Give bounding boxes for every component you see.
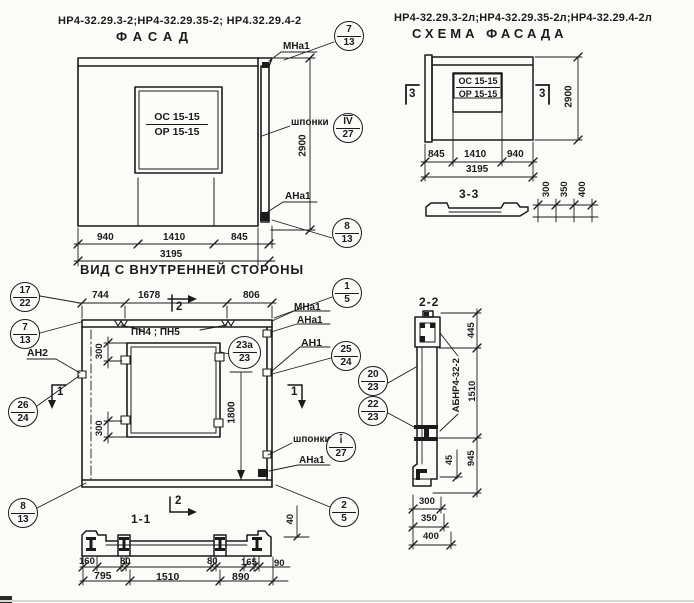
section-2-2-profile [413,311,440,486]
section-2-2-dim-445: 445 [467,317,477,343]
facade-dim-w2: 1410 [163,232,185,243]
plan-dim-300-top: 300 [95,338,105,364]
callout-numerator: 8 [20,502,26,512]
plan-dim-806: 806 [243,290,260,301]
scheme-dim-w2: 1410 [464,149,486,160]
section-1-1-dim-1510: 1510 [156,572,179,584]
section-1-1-dim-795: 795 [94,571,112,583]
callout-numerator: 23а [236,341,253,351]
callout-numerator: 17 [19,286,30,296]
callout-key-plan: i 27 [326,432,356,462]
scheme-dim-total: 3195 [466,164,488,175]
plan-section-mark-2-bottom: 2 [175,495,181,508]
section-2-2-dim-300: 300 [419,497,435,507]
callout-1-5: 1 5 [332,278,362,308]
scheme-title: НР4-32.29.3-2л;НР4-32.29.35-2л;НР4-32.29… [394,12,652,24]
callout-26-24: 26 24 [8,397,38,427]
plan-label-ana1-bottom: АНа1 [299,455,325,466]
callout-17-22: 17 22 [10,282,40,312]
section-3-3-title: 3-3 [459,188,479,201]
window-mark-bottom: ОР 15-15 [155,126,200,138]
section-2-2-beam-label: АБНР4-32-2 [452,348,462,422]
callout-key-facade: IV 27 [333,113,363,143]
section-2-2-dim-400: 400 [423,532,439,542]
section-1-1-dim-90: 90 [274,559,285,569]
callout-25-24: 25 24 [331,341,361,371]
callout-numerator: i [340,436,343,446]
callout-denominator: 23 [367,383,378,393]
callout-8-13-facade: 8 13 [332,218,362,248]
callout-denominator: 5 [344,295,350,305]
plan-section-mark-2-top: 2 [176,301,182,314]
callout-denominator: 13 [341,235,352,245]
callout-numerator: 1 [344,282,350,292]
callout-7-13-facade: 7 13 [334,21,364,51]
plan-label-ana1-top: АНа1 [297,315,323,326]
section-1-1-anchor-beams [86,537,262,551]
plan-dim-1800: 1800 [227,396,238,430]
plan-dim-300-bottom: 300 [95,415,105,441]
callout-numerator: 7 [346,25,352,35]
section-1-1-dim-80a: 80 [120,557,131,567]
plan-dim-1678: 1678 [138,290,160,301]
scheme-dim-w1: 845 [428,149,445,160]
callout-22-23: 22 23 [358,396,388,426]
callout-numerator: 7 [22,323,28,333]
plan-dim-40: 40 [286,506,296,532]
scheme-dim-w3: 940 [507,149,524,160]
section-2-2-dim-45: 45 [445,450,455,470]
callout-denominator: 13 [17,515,28,525]
scheme-section-mark-right: 3 [539,88,545,101]
window-mark-top: ОС 15-15 [154,111,200,123]
fraction-divider [146,124,208,125]
window-mark-top: ОС 15-15 [458,76,497,86]
scan-edge-line [0,600,694,602]
facade-dim-height: 2900 [298,129,309,163]
plan-section-mark-1-left: 1 [57,386,63,399]
facade-dim-w1: 940 [97,232,114,243]
facade-label-ana1: АНа1 [285,191,311,202]
callout-denominator: 13 [343,38,354,48]
plan-label-shponki: шпонки [293,434,331,445]
plan-anchor-mark [258,469,268,477]
callout-denominator: 22 [19,299,30,309]
callout-2-5: 2 5 [329,497,359,527]
fraction-divider [456,87,500,88]
callout-denominator: 27 [335,449,346,459]
window-mark-bottom: ОР 15-15 [459,89,498,99]
scheme-section-mark-left: 3 [409,88,415,101]
facade-window-mark: ОС 15-15 ОР 15-15 [146,111,208,138]
scheme-window-mark: ОС 15-15 ОР 15-15 [456,76,500,100]
callout-numerator: 8 [344,222,350,232]
callout-7-13-plan: 7 13 [10,319,40,349]
plan-section-mark-1-right: 1 [291,386,297,399]
callout-denominator: 27 [342,130,353,140]
section-3-3-dim-300: 300 [542,176,552,202]
section-1-1-dim-160: 160 [79,557,95,567]
section-3-3-profile [426,203,528,216]
scheme-dimension-lines [421,53,582,181]
callout-numerator: IV [343,117,352,127]
section-2-2-dim-350: 350 [421,514,437,524]
callout-23a-23: 23а 23 [228,336,261,369]
facade-label-mna1: МНа1 [283,41,310,52]
section-3-3-dimension-lines [533,199,598,222]
callout-denominator: 24 [340,358,351,368]
callout-denominator: 24 [17,414,28,424]
section-3-3-dim-400: 400 [578,176,588,202]
section-1-1-dim-890: 890 [232,572,250,584]
facade-panel-outline [78,58,272,226]
plan-dim-744: 744 [92,290,109,301]
callout-denominator: 13 [19,336,30,346]
callout-denominator: 5 [341,514,347,524]
scheme-dim-height: 2900 [564,80,575,114]
callout-numerator: 2 [341,501,347,511]
plan-label-pn: ПН4 ; ПН5 [131,327,180,338]
callout-numerator: 22 [367,400,378,410]
section-2-2-dim-945: 945 [467,445,477,471]
facade-dim-w3: 845 [231,232,248,243]
drawing-sheet: НР4-32.29.3-2;НР4-32.29.35-2; НР4.32.29.… [0,0,694,603]
callout-denominator: 23 [367,413,378,423]
section-2-2-dim-1510: 1510 [468,374,478,408]
plan-label-mna1: МНа1 [294,302,321,313]
facade-caption: ВИД С ВНУТРЕННЕЙ СТОРОНЫ [80,263,304,277]
callout-8-13-plan: 8 13 [8,498,38,528]
facade-label-shponki: шпонки [291,117,329,128]
plan-label-an1: АН1 [301,338,322,350]
callout-numerator: 20 [367,370,378,380]
facade-title: НР4-32.29.3-2;НР4-32.29.35-2; НР4.32.29.… [58,15,301,27]
plan-label-an2: АН2 [27,348,48,360]
scheme-heading: СХЕМА ФАСАДА [412,27,568,41]
callout-20-23: 20 23 [358,366,388,396]
section-2-2-title: 2-2 [419,296,439,309]
section-1-1-title: 1-1 [131,513,151,526]
section-3-3-dim-350: 350 [560,176,570,202]
section-1-1-dim-80b: 80 [207,557,218,567]
facade-heading: ФАСАД [116,30,194,44]
section-1-1-profile [82,531,271,556]
facade-dim-total: 3195 [160,249,182,260]
section-1-1-dim-165: 165 [241,558,257,568]
callout-numerator: 25 [340,345,351,355]
callout-numerator: 26 [17,401,28,411]
callout-denominator: 23 [239,354,250,364]
